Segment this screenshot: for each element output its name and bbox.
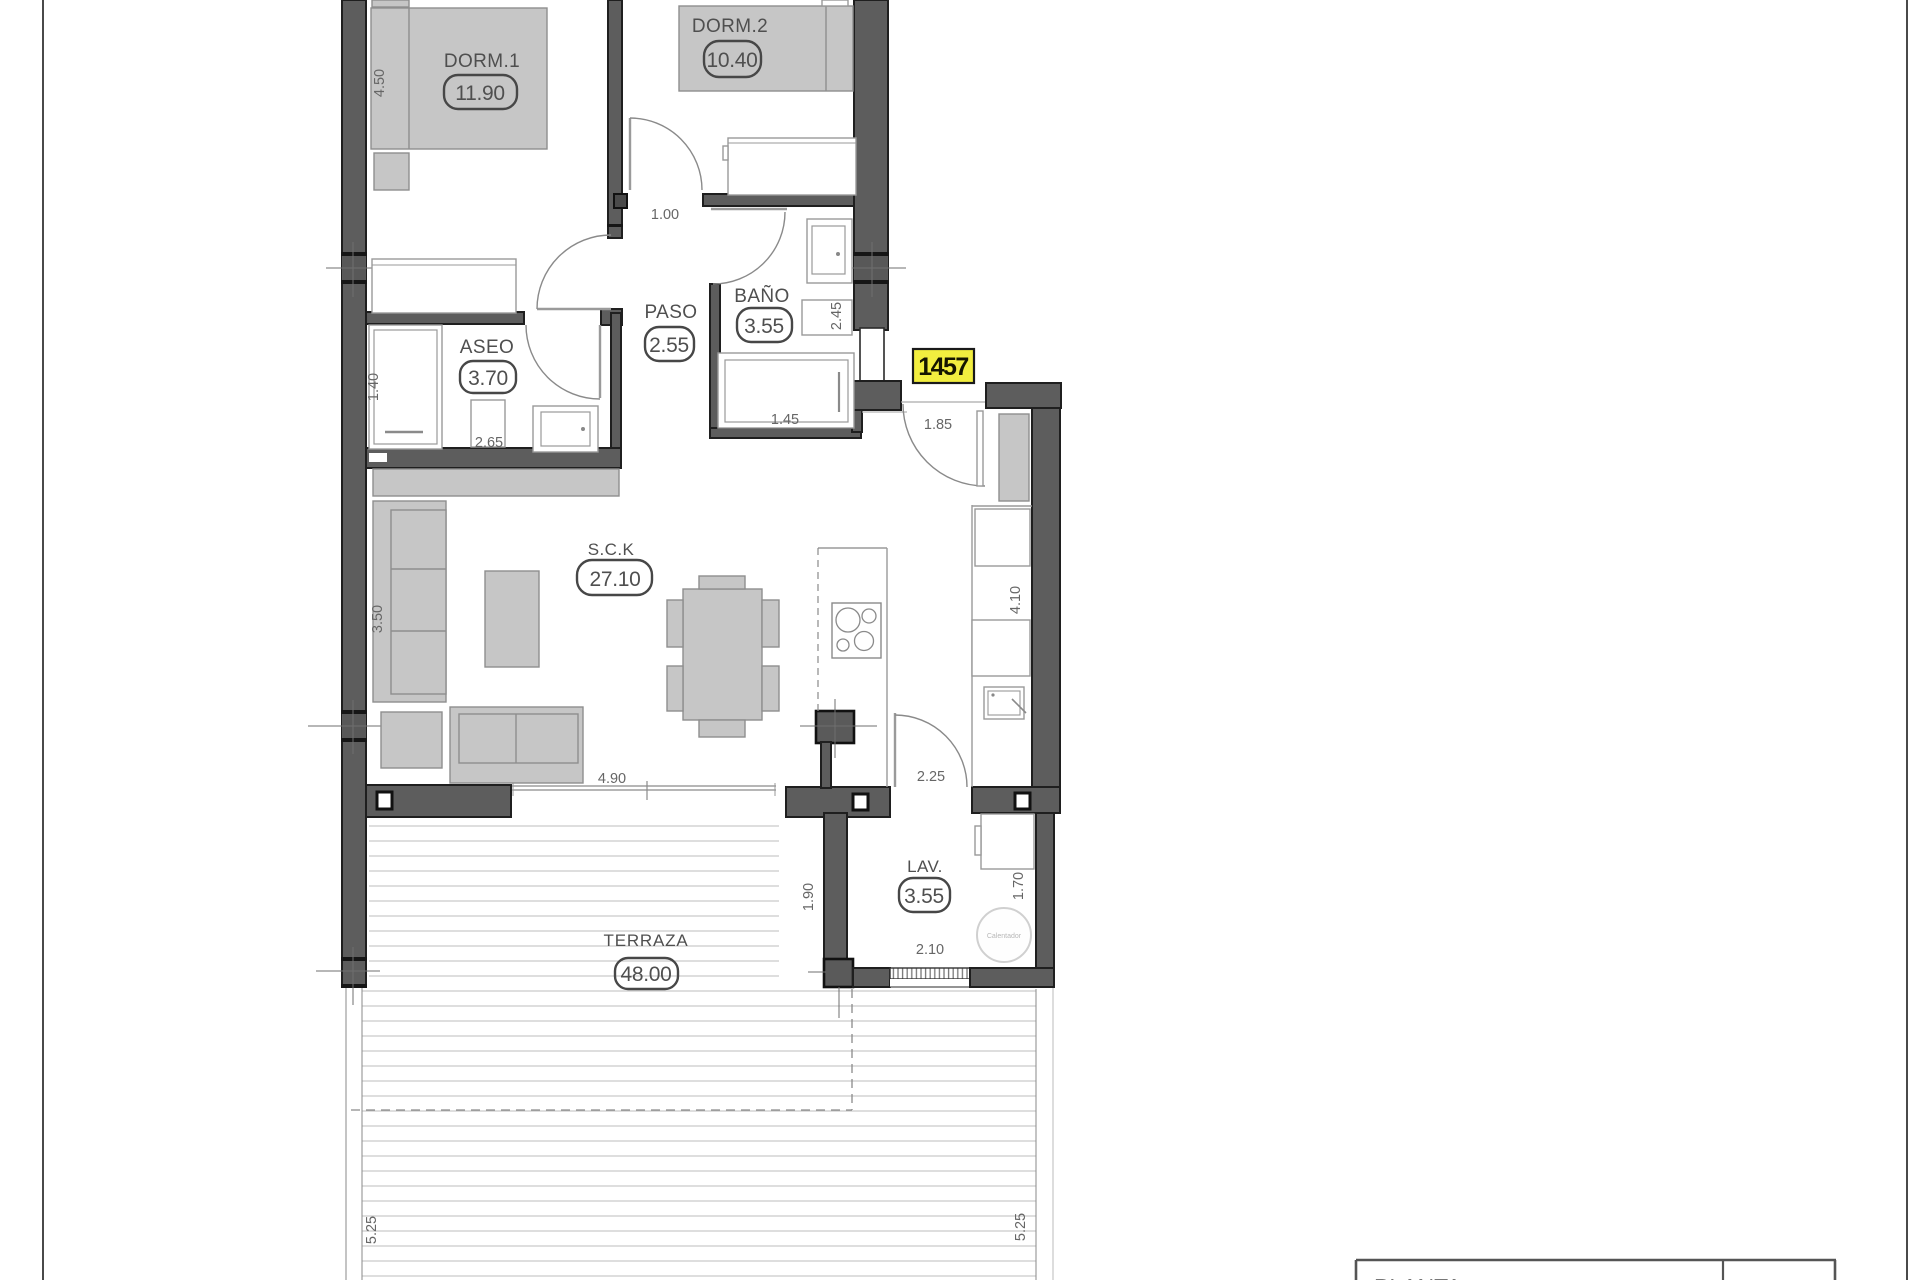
svg-text:2.45: 2.45 <box>829 302 845 330</box>
svg-text:3.55: 3.55 <box>904 885 944 908</box>
svg-text:S.C.K: S.C.K <box>588 540 635 559</box>
svg-text:TERRAZA: TERRAZA <box>604 931 689 950</box>
svg-text:DORM.2: DORM.2 <box>692 16 768 37</box>
svg-text:48.00: 48.00 <box>620 963 671 986</box>
svg-text:Calentador: Calentador <box>987 933 1022 940</box>
svg-text:BAÑO: BAÑO <box>734 285 789 307</box>
svg-text:4.50: 4.50 <box>372 69 388 97</box>
svg-text:ASEO: ASEO <box>460 337 514 358</box>
svg-text:3.70: 3.70 <box>468 367 508 390</box>
svg-text:1.40: 1.40 <box>366 373 382 401</box>
svg-text:1.70: 1.70 <box>1011 872 1027 900</box>
svg-text:27.10: 27.10 <box>589 568 640 591</box>
svg-text:3.50: 3.50 <box>370 605 386 633</box>
svg-text:DORM.1: DORM.1 <box>444 51 520 72</box>
svg-text:2.65: 2.65 <box>475 435 503 451</box>
svg-text:10.40: 10.40 <box>706 49 757 72</box>
svg-text:2.10: 2.10 <box>916 942 944 958</box>
svg-text:2.25: 2.25 <box>917 769 945 785</box>
svg-text:5.25: 5.25 <box>1013 1213 1029 1241</box>
svg-text:5.25: 5.25 <box>364 1216 380 1244</box>
svg-text:2.55: 2.55 <box>649 334 689 357</box>
svg-text:4.90: 4.90 <box>598 771 626 787</box>
svg-text:1457: 1457 <box>918 353 968 381</box>
svg-text:3.55: 3.55 <box>744 315 784 338</box>
svg-text:PASO: PASO <box>645 302 698 323</box>
svg-text:11.90: 11.90 <box>455 82 505 105</box>
svg-text:2: 2 <box>1768 1275 1781 1280</box>
svg-text:LAV.: LAV. <box>907 857 943 876</box>
svg-text:1.90: 1.90 <box>801 883 817 911</box>
svg-text:PLANTA: PLANTA <box>1374 1274 1462 1280</box>
svg-text:1.00: 1.00 <box>651 207 679 223</box>
svg-text:1.85: 1.85 <box>924 417 952 433</box>
svg-text:4.10: 4.10 <box>1008 586 1024 614</box>
svg-text:1.45: 1.45 <box>771 412 799 428</box>
